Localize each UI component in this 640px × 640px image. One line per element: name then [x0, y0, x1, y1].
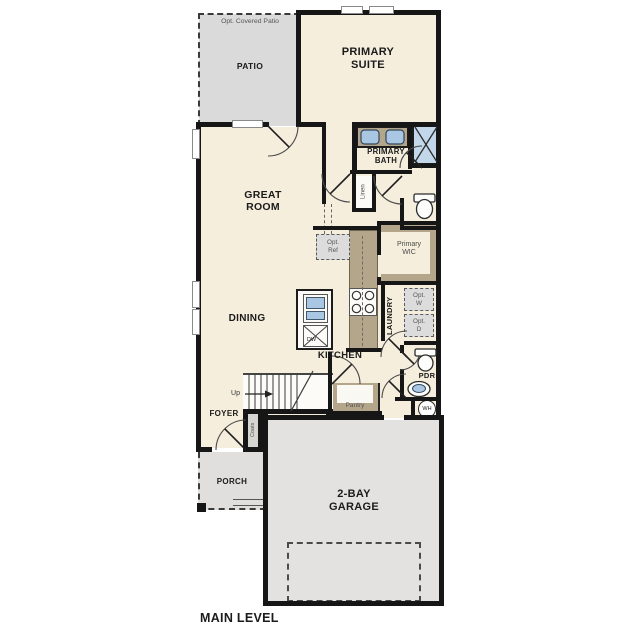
wall-segment	[263, 415, 384, 420]
plan-title: MAIN LEVEL	[200, 610, 310, 626]
primary-bath-text: PRIMARY BATH	[365, 148, 407, 166]
opt-covered-patio-label: Opt. Covered Patio	[205, 16, 295, 27]
window-marker	[369, 6, 394, 14]
great-room-label: GREAT ROOM	[224, 187, 302, 215]
window-marker	[192, 281, 200, 308]
dishwasher-label: DW	[304, 336, 319, 345]
opt-dryer-box: Opt. D	[404, 314, 434, 337]
wall-segment	[404, 341, 441, 345]
wic-shelf	[381, 274, 437, 281]
laundry-text: LAUNDRY	[386, 297, 395, 336]
bath-vanity	[356, 126, 409, 148]
linen-label: Linen	[356, 177, 372, 207]
primary-suite-label: PRIMARY SUITE	[330, 45, 406, 73]
porch-post	[197, 503, 206, 512]
wall-segment	[352, 122, 357, 170]
wall-segment	[404, 415, 444, 420]
up-text: Up	[231, 390, 240, 398]
plan-title-text: MAIN LEVEL	[200, 611, 279, 625]
linen-text: Linen	[361, 185, 368, 200]
water-heater-label: WH	[418, 404, 436, 414]
stair-run	[243, 373, 333, 409]
pdr-label: PDR	[413, 371, 441, 381]
wall-segment	[263, 412, 268, 606]
floor-plan: Opt. Ref Opt. W Opt. D	[0, 0, 640, 640]
wall-segment	[296, 15, 301, 127]
pantry-label: Pantry	[332, 401, 378, 410]
pdr-text: PDR	[419, 372, 436, 381]
sink-basin	[306, 297, 325, 309]
wall-segment	[395, 397, 441, 401]
wall-segment	[411, 401, 415, 417]
wall-segment	[400, 226, 441, 230]
opt-washer-box: Opt. W	[404, 288, 434, 311]
foyer-area	[200, 418, 243, 448]
porch-step	[233, 499, 266, 506]
coats-text: Coats	[250, 423, 256, 437]
garage-door-outline	[287, 542, 421, 602]
foyer-text: FOYER	[209, 409, 238, 418]
wall-segment	[263, 122, 269, 127]
wall-segment	[356, 122, 441, 127]
range	[349, 288, 377, 316]
wall-segment	[196, 447, 212, 452]
wall-segment	[313, 226, 379, 230]
pantry-text: Pantry	[346, 402, 365, 409]
opt-washer-label: Opt. W	[410, 292, 428, 307]
upper-cabinet-dash	[362, 236, 363, 346]
opt-covered-patio-text: Opt. Covered Patio	[221, 18, 279, 26]
opt-ref-box: Opt. Ref	[316, 234, 350, 260]
great-room-text: GREAT ROOM	[239, 189, 287, 213]
wall-segment	[352, 208, 376, 212]
wall-segment	[350, 170, 412, 174]
primary-bath-label: PRIMARY BATH	[361, 147, 411, 167]
porch-label: PORCH	[213, 476, 251, 487]
patio-text: PATIO	[237, 62, 263, 72]
wall-segment	[411, 164, 441, 168]
wall-segment	[439, 420, 444, 606]
wall-segment	[258, 412, 263, 448]
dishwasher-text: DW	[307, 337, 316, 343]
dining-label: DINING	[221, 312, 273, 325]
up-label: Up	[228, 389, 243, 399]
opt-dryer-label: Opt. D	[410, 318, 428, 333]
laundry-label: LAUNDRY	[384, 290, 397, 342]
window-marker	[192, 309, 200, 335]
wall-segment	[326, 411, 382, 415]
wall-segment	[377, 281, 441, 285]
window-marker	[341, 6, 363, 14]
primary-wic-label: Primary WIC	[384, 239, 434, 259]
garage-label: 2-BAY GARAGE	[318, 487, 390, 515]
opt-ref-label: Opt. Ref	[322, 239, 344, 254]
wall-segment	[377, 221, 441, 225]
window-marker	[232, 120, 263, 128]
wall-segment	[322, 127, 326, 204]
sink-basin	[306, 311, 325, 320]
wall-segment	[436, 10, 441, 420]
wall-segment	[263, 601, 444, 606]
patio-label: PATIO	[205, 61, 295, 72]
wall-segment	[196, 122, 232, 127]
primary-suite-text: PRIMARY SUITE	[337, 46, 399, 71]
foyer-label: FOYER	[205, 408, 243, 419]
dining-text: DINING	[229, 313, 266, 325]
kitchen-text: KITCHEN	[318, 351, 362, 362]
wall-segment	[372, 174, 376, 212]
garage-text: 2-BAY GARAGE	[325, 488, 383, 513]
water-heater-text: WH	[422, 406, 431, 412]
primary-wic-text: Primary WIC	[393, 241, 425, 257]
kitchen-label: KITCHEN	[309, 350, 371, 362]
wall-segment	[400, 345, 404, 353]
porch-text: PORCH	[217, 477, 247, 486]
window-marker	[192, 129, 200, 159]
coats-label: Coats	[248, 414, 258, 446]
